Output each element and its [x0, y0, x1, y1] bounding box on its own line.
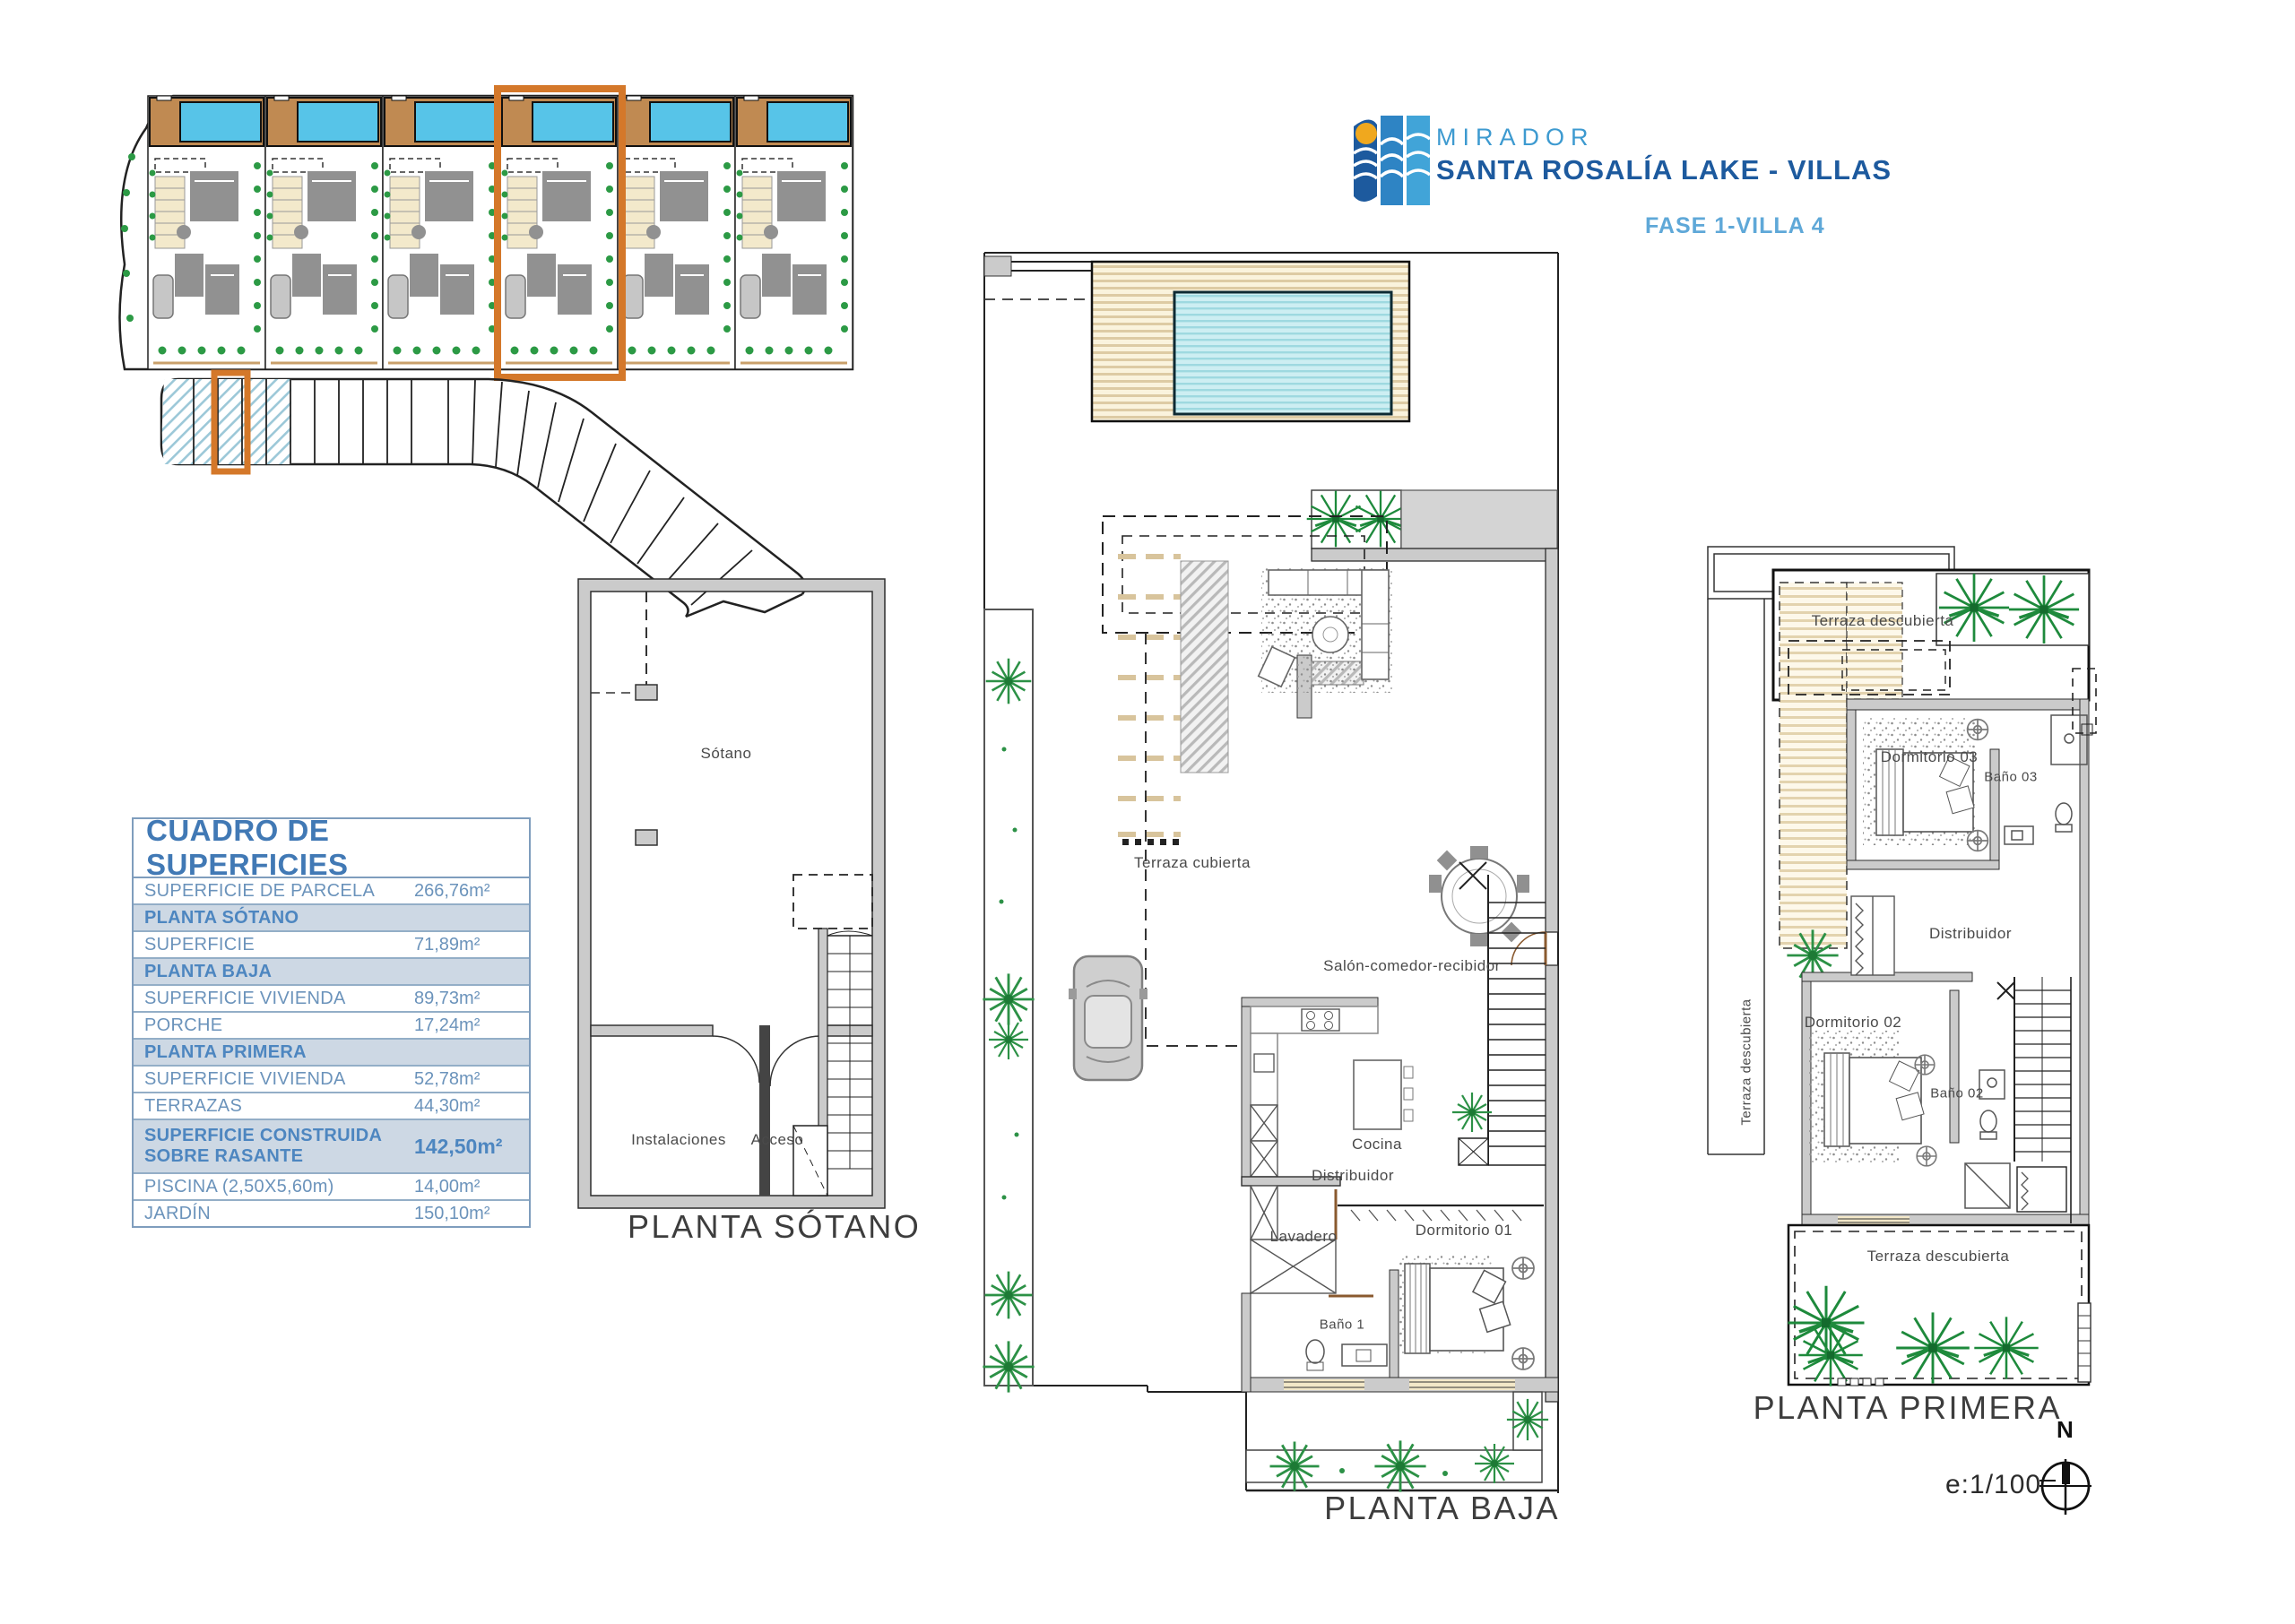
- room-label-dormitorio3: Dormitorio 03: [1881, 748, 1979, 766]
- row-label: PISCINA (2,50X5,60m): [134, 1177, 414, 1197]
- plan-sheet: MIRADOR SANTA ROSALÍA LAKE - VILLAS FASE…: [0, 0, 2295, 1624]
- room-label-cocina: Cocina: [1352, 1136, 1402, 1153]
- row-label: JARDÍN: [134, 1204, 414, 1224]
- surface-table-title: CUADRO DE SUPERFICIES: [134, 819, 529, 878]
- row-label: SUPERFICIE CONSTRUIDA SOBRE RASANTE: [134, 1126, 414, 1167]
- row-label: TERRAZAS: [134, 1096, 414, 1117]
- table-row: SUPERFICIE VIVIENDA 89,73m²: [134, 986, 529, 1013]
- row-label: PLANTA BAJA: [134, 962, 414, 982]
- table-row: SUPERFICIE VIVIENDA 52,78m²: [134, 1067, 529, 1093]
- room-label-bano3: Baño 03: [1984, 770, 2037, 785]
- row-value: 14,00m²: [414, 1177, 529, 1197]
- row-value: 44,30m²: [414, 1096, 529, 1117]
- logo-brand-name: MIRADOR: [1436, 124, 1595, 151]
- living-room: [1259, 567, 1392, 693]
- dining-table: [1429, 846, 1529, 946]
- basement-plan-title: PLANTA SÓTANO: [628, 1208, 885, 1246]
- villa-row: [120, 89, 853, 377]
- room-label-distribuidor-primera: Distribuidor: [1929, 925, 2012, 943]
- logo-mark: [1352, 114, 1433, 207]
- row-value: 142,50m²: [414, 1135, 529, 1159]
- logo-project-name: SANTA ROSALÍA LAKE - VILLAS: [1436, 154, 1892, 186]
- left-garden-strip: [983, 609, 1034, 1393]
- room-label-terraza-cubierta: Terraza cubierta: [1134, 854, 1251, 872]
- table-row: JARDÍN 150,10m²: [134, 1201, 529, 1226]
- room-label-bano2: Baño 02: [1930, 1086, 1983, 1101]
- row-label: SUPERFICIE VIVIENDA: [134, 989, 414, 1009]
- row-value: 71,89m²: [414, 935, 529, 955]
- room-label-lavadero: Lavadero: [1270, 1228, 1338, 1246]
- ground-floor-plan-title: PLANTA BAJA: [1300, 1490, 1560, 1527]
- room-label-acceso: Acceso: [751, 1131, 804, 1149]
- row-value: 52,78m²: [414, 1069, 529, 1090]
- bedroom2: [1809, 1031, 1936, 1166]
- row-label: PLANTA PRIMERA: [134, 1042, 414, 1063]
- interior-lines: [591, 592, 872, 1196]
- utility-closets: [1242, 1105, 1373, 1296]
- logo-phase-label: FASE 1-VILLA 4: [1645, 213, 1932, 239]
- row-label: PORCHE: [134, 1015, 414, 1036]
- room-label-terraza-sup: Terraza descubierta: [1812, 612, 1954, 630]
- table-row: PLANTA BAJA: [134, 959, 529, 986]
- room-label-distribuidor-baja: Distribuidor: [1312, 1167, 1394, 1185]
- row-label: SUPERFICIE VIVIENDA: [134, 1069, 414, 1090]
- row-label: PLANTA SÓTANO: [134, 908, 414, 929]
- table-row: PLANTA PRIMERA: [134, 1040, 529, 1067]
- room-label-terraza-inf: Terraza descubierta: [1867, 1248, 2010, 1266]
- room-label-bano1: Baño 1: [1320, 1317, 1365, 1333]
- room-label-terraza-lateral: Terraza descubierta: [1739, 998, 1754, 1125]
- row-value: 17,24m²: [414, 1015, 529, 1036]
- table-row: SUPERFICIE DE PARCELA 266,76m²: [134, 878, 529, 905]
- car-icon: [1069, 956, 1147, 1080]
- bottom-wall-and-garden: [1246, 1378, 1558, 1492]
- room-label-instalaciones: Instalaciones: [631, 1131, 726, 1149]
- room-label-dormitorio1: Dormitorio 01: [1416, 1222, 1513, 1240]
- distributor-closet: [1851, 896, 1894, 975]
- site-plan: [85, 49, 910, 641]
- table-row: SUPERFICIE 71,89m²: [134, 932, 529, 959]
- bedroom3: [1863, 718, 1988, 851]
- first-floor-plan: [1703, 534, 2102, 1399]
- upper-staircase: [1997, 977, 2071, 1223]
- row-value: 150,10m²: [414, 1204, 529, 1224]
- room-label-dormitorio2: Dormitorio 02: [1805, 1014, 1902, 1032]
- basement-plan: [578, 579, 885, 1208]
- row-label: SUPERFICIE: [134, 935, 414, 955]
- ground-floor-plan: [979, 247, 1563, 1583]
- right-hatch-strip: [2078, 1303, 2091, 1382]
- first-floor-plan-title: PLANTA PRIMERA: [1739, 1389, 2062, 1427]
- table-row: PLANTA SÓTANO: [134, 905, 529, 932]
- surface-table: CUADRO DE SUPERFICIES SUPERFICIE DE PARC…: [132, 817, 531, 1228]
- row-value: 89,73m²: [414, 989, 529, 1009]
- exterior-walls: [578, 579, 885, 1208]
- entrance-gate: [984, 256, 1092, 299]
- row-value: 266,76m²: [414, 881, 529, 902]
- room-label-sotano: Sótano: [701, 745, 752, 763]
- table-row: PISCINA (2,50X5,60m) 14,00m²: [134, 1174, 529, 1201]
- row-label: SUPERFICIE DE PARCELA: [134, 881, 414, 902]
- top-right-planter: [1307, 490, 1557, 549]
- table-row: SUPERFICIE CONSTRUIDA SOBRE RASANTE 142,…: [134, 1120, 529, 1174]
- swimming-pool: [1174, 292, 1391, 414]
- table-row: TERRAZAS 44,30m²: [134, 1093, 529, 1120]
- north-compass-icon: [2034, 1439, 2099, 1522]
- table-row: PORCHE 17,24m²: [134, 1013, 529, 1040]
- scale-label: e:1/100: [1945, 1470, 2041, 1500]
- room-label-salon: Salón-comedor-recibidor: [1323, 957, 1501, 975]
